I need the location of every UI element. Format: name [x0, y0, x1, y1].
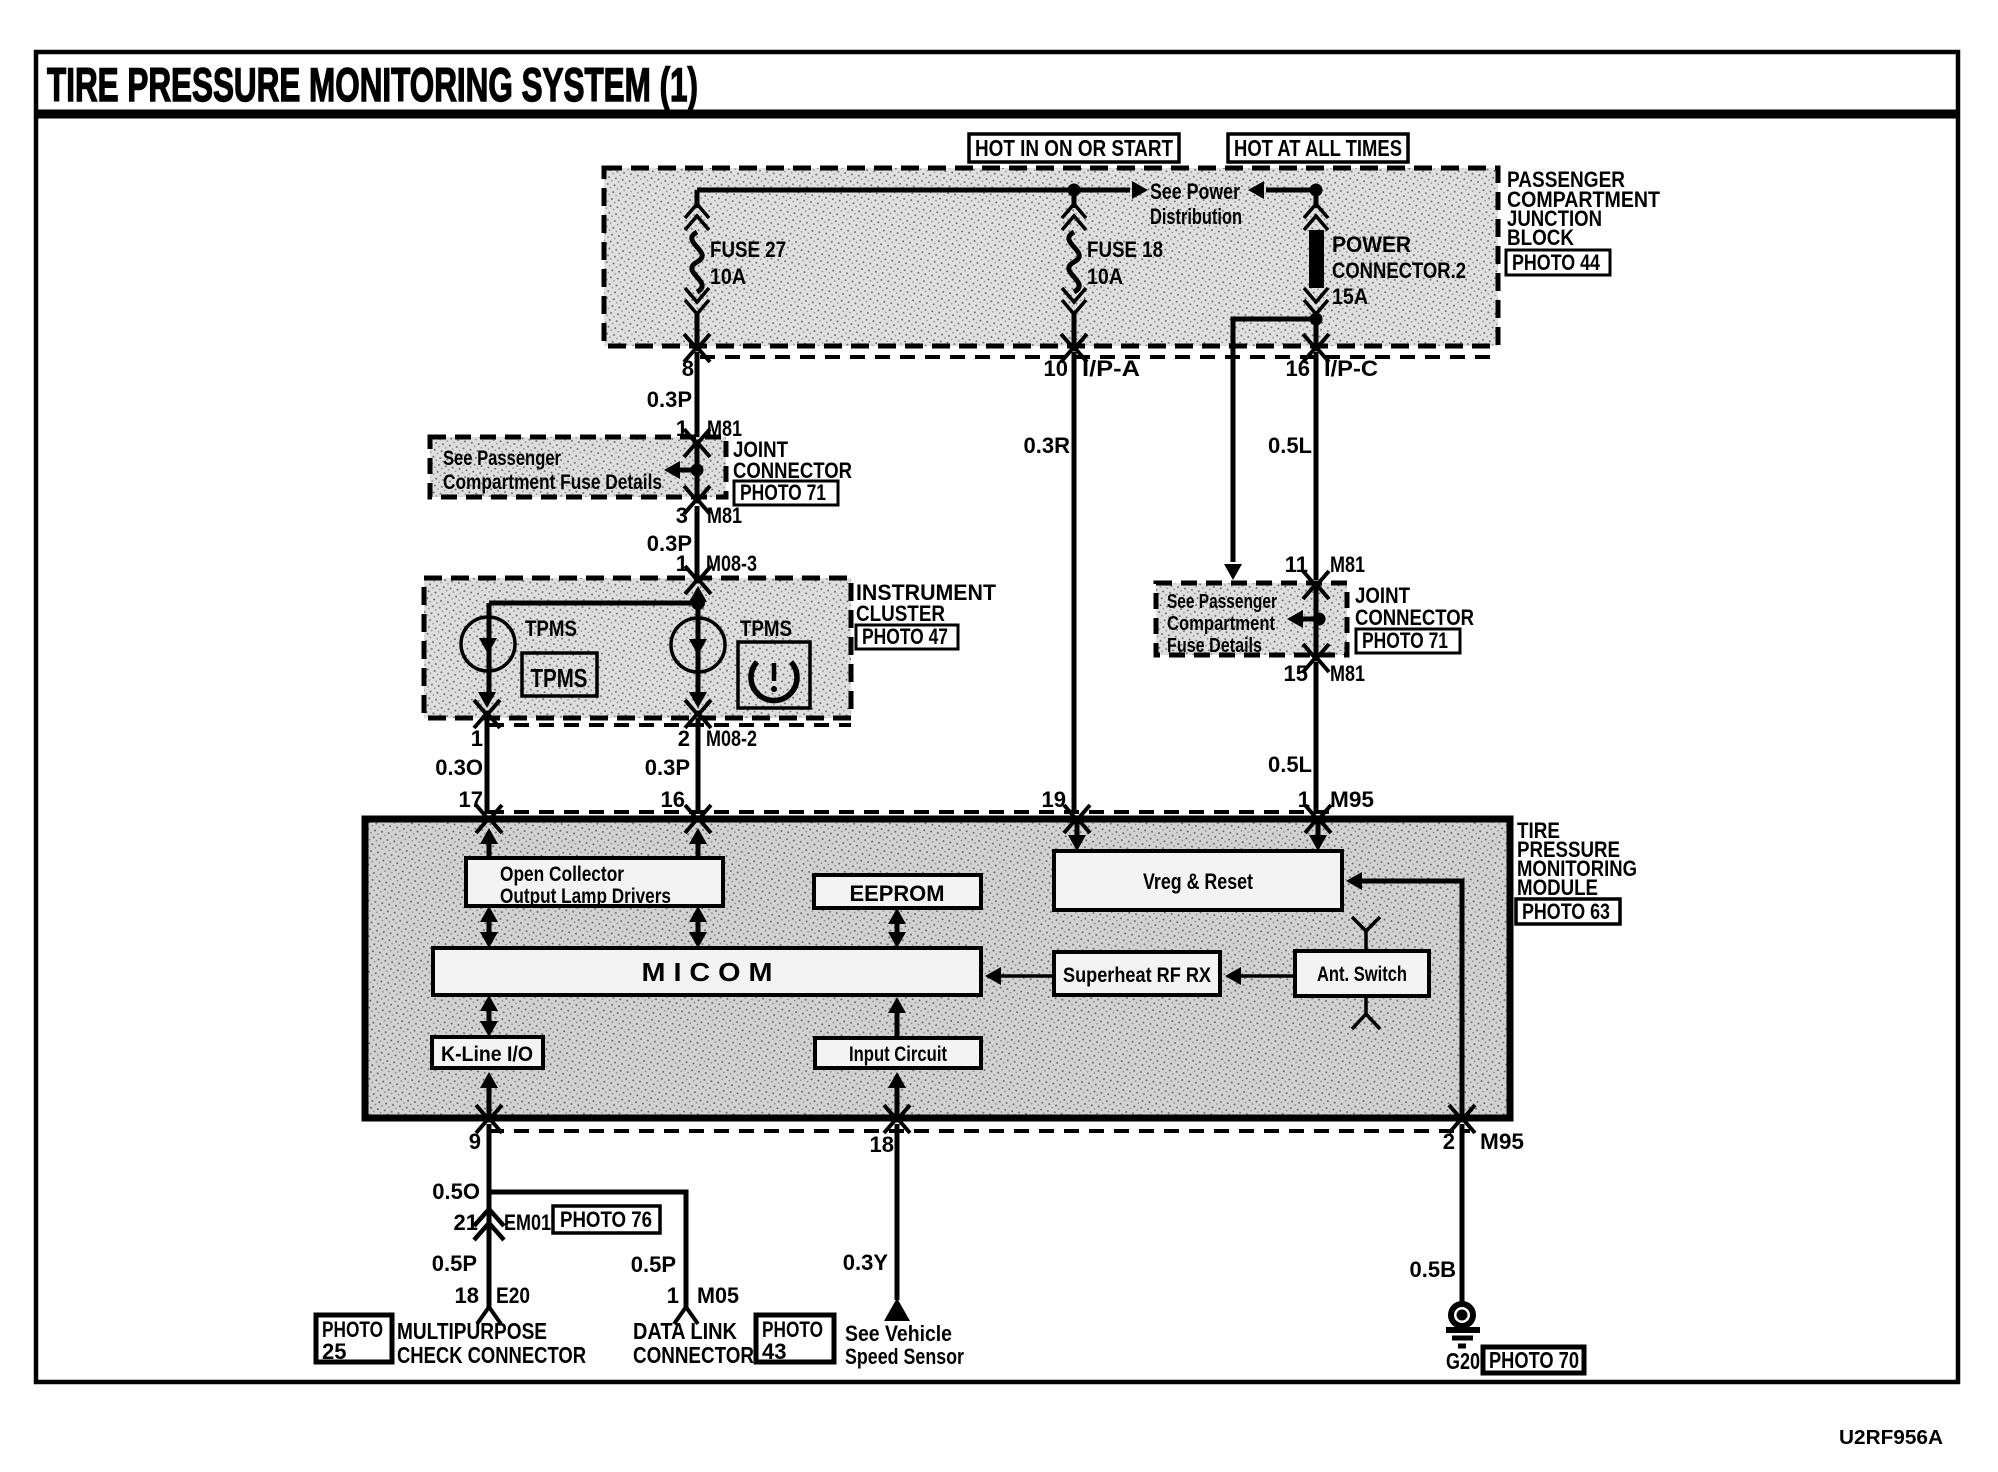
svg-text:15A: 15A [1332, 284, 1368, 309]
svg-text:M08-2: M08-2 [706, 726, 757, 751]
svg-text:EM01: EM01 [504, 1210, 551, 1235]
svg-text:G20: G20 [1446, 1348, 1480, 1374]
svg-text:PHOTO 63: PHOTO 63 [1522, 899, 1610, 924]
svg-text:CONNECTOR: CONNECTOR [633, 1342, 754, 1368]
svg-text:CONNECTOR: CONNECTOR [1355, 605, 1474, 630]
svg-text:HOT AT ALL TIMES: HOT AT ALL TIMES [1234, 135, 1402, 161]
svg-text:0.5L: 0.5L [1268, 433, 1312, 458]
svg-text:Open Collector: Open Collector [500, 863, 624, 886]
svg-text:See Vehicle: See Vehicle [845, 1321, 952, 1346]
svg-text:Compartment Fuse Details: Compartment Fuse Details [443, 471, 662, 494]
svg-text:M95: M95 [1480, 1129, 1524, 1154]
svg-text:TPMS: TPMS [531, 663, 588, 693]
svg-text:16: 16 [661, 787, 685, 812]
svg-text:PHOTO 44: PHOTO 44 [1512, 250, 1601, 275]
svg-text:M81: M81 [1330, 661, 1365, 686]
svg-text:8: 8 [682, 356, 694, 381]
svg-text:I/P-A: I/P-A [1082, 356, 1140, 381]
svg-text:MODULE: MODULE [1517, 875, 1598, 900]
svg-text:TPMS: TPMS [525, 616, 577, 641]
svg-text:U2RF956A: U2RF956A [1839, 1427, 1943, 1449]
svg-text:PHOTO 47: PHOTO 47 [862, 624, 948, 649]
svg-text:M95: M95 [1330, 787, 1374, 812]
svg-text:M81: M81 [1330, 552, 1365, 577]
svg-text:TPMS: TPMS [740, 616, 792, 641]
svg-text:M81: M81 [707, 503, 742, 528]
svg-text:PHOTO 76: PHOTO 76 [560, 1207, 652, 1232]
svg-text:0.5P: 0.5P [432, 1251, 477, 1276]
svg-text:FUSE 18: FUSE 18 [1087, 237, 1163, 262]
svg-text:43: 43 [762, 1339, 786, 1364]
svg-text:3: 3 [676, 503, 688, 528]
svg-text:HOT IN ON OR START: HOT IN ON OR START [975, 135, 1173, 161]
svg-text:Vreg & Reset: Vreg & Reset [1143, 869, 1254, 894]
svg-text:Output Lamp Drivers: Output Lamp Drivers [500, 885, 671, 908]
svg-text:Fuse Details: Fuse Details [1167, 635, 1262, 657]
svg-text:DATA LINK: DATA LINK [633, 1318, 737, 1344]
svg-text:CONNECTOR.2: CONNECTOR.2 [1332, 258, 1466, 283]
svg-text:9: 9 [469, 1129, 481, 1154]
svg-text:CLUSTER: CLUSTER [856, 601, 945, 626]
svg-text:18: 18 [455, 1283, 479, 1308]
svg-text:EEPROM: EEPROM [850, 881, 945, 906]
svg-text:M I C O M: M I C O M [642, 957, 773, 987]
svg-text:0.3P: 0.3P [647, 387, 692, 412]
svg-text:0.5P: 0.5P [631, 1252, 676, 1277]
svg-text:PHOTO 71: PHOTO 71 [1362, 628, 1448, 653]
svg-text:1: 1 [471, 726, 483, 751]
svg-text:Distribution: Distribution [1150, 204, 1242, 229]
svg-text:0.3O: 0.3O [435, 755, 483, 780]
svg-text:Superheat RF RX: Superheat RF RX [1063, 964, 1211, 987]
svg-text:K-Line I/O: K-Line I/O [441, 1043, 533, 1066]
svg-text:16: 16 [1286, 356, 1310, 381]
svg-text:Compartment: Compartment [1167, 613, 1275, 635]
svg-text:1: 1 [676, 551, 688, 576]
svg-text:MULTIPURPOSE: MULTIPURPOSE [397, 1318, 547, 1344]
svg-text:See Passenger: See Passenger [1167, 591, 1277, 613]
svg-text:TIRE PRESSURE MONITORING SYSTE: TIRE PRESSURE MONITORING SYSTEM (1) [47, 58, 698, 111]
svg-text:0.3P: 0.3P [645, 755, 690, 780]
svg-text:M08-3: M08-3 [706, 551, 757, 576]
svg-text:See Passenger: See Passenger [443, 447, 561, 470]
svg-text:Speed Sensor: Speed Sensor [845, 1344, 964, 1369]
svg-text:19: 19 [1042, 787, 1066, 812]
svg-text:2: 2 [678, 726, 690, 751]
svg-text:M05: M05 [697, 1283, 739, 1308]
svg-text:0.3Y: 0.3Y [843, 1250, 889, 1275]
svg-text:2: 2 [1443, 1129, 1455, 1154]
svg-text:25: 25 [322, 1339, 346, 1364]
svg-text:0.3R: 0.3R [1024, 433, 1071, 458]
svg-text:CHECK CONNECTOR: CHECK CONNECTOR [397, 1342, 586, 1368]
svg-text:1: 1 [667, 1283, 679, 1308]
svg-text:21: 21 [454, 1210, 478, 1235]
svg-text:FUSE 27: FUSE 27 [710, 237, 786, 262]
svg-text:Ant. Switch: Ant. Switch [1317, 963, 1407, 986]
svg-text:18: 18 [870, 1132, 894, 1157]
svg-text:I/P-C: I/P-C [1324, 356, 1378, 381]
svg-text:0.5L: 0.5L [1268, 752, 1312, 777]
svg-text:10: 10 [1044, 356, 1068, 381]
svg-text:Input Circuit: Input Circuit [849, 1043, 947, 1066]
svg-text:See Power: See Power [1150, 179, 1240, 204]
svg-text:PHOTO 71: PHOTO 71 [740, 480, 826, 505]
svg-text:BLOCK: BLOCK [1507, 225, 1574, 250]
svg-text:0.5O: 0.5O [432, 1179, 480, 1204]
svg-text:PHOTO 70: PHOTO 70 [1489, 1347, 1579, 1373]
svg-text:10A: 10A [710, 264, 746, 289]
svg-text:15: 15 [1284, 661, 1308, 686]
svg-text:10A: 10A [1087, 264, 1123, 289]
svg-text:POWER: POWER [1332, 232, 1411, 257]
svg-text:0.5B: 0.5B [1410, 1257, 1456, 1282]
svg-text:E20: E20 [496, 1283, 530, 1308]
